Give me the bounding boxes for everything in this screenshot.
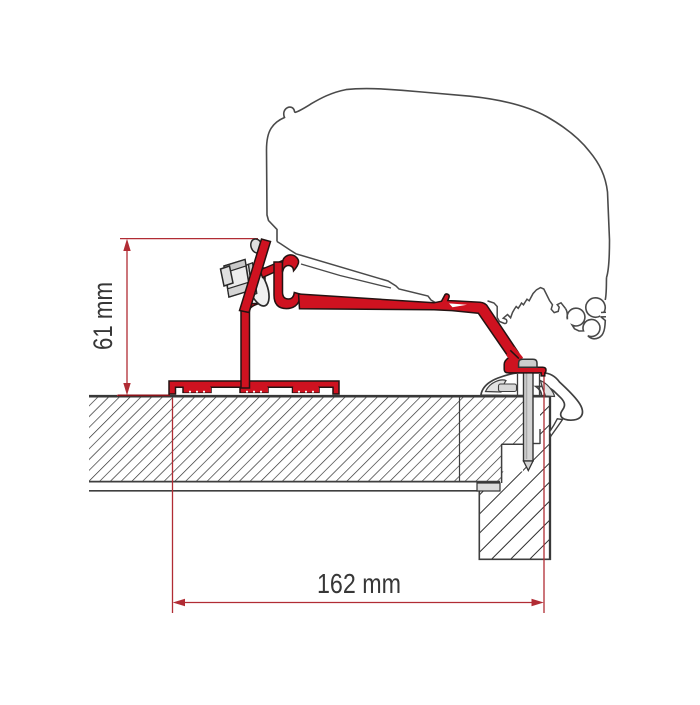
svg-text:61 mm: 61 mm [88,282,118,350]
svg-text:162 mm: 162 mm [317,568,401,599]
